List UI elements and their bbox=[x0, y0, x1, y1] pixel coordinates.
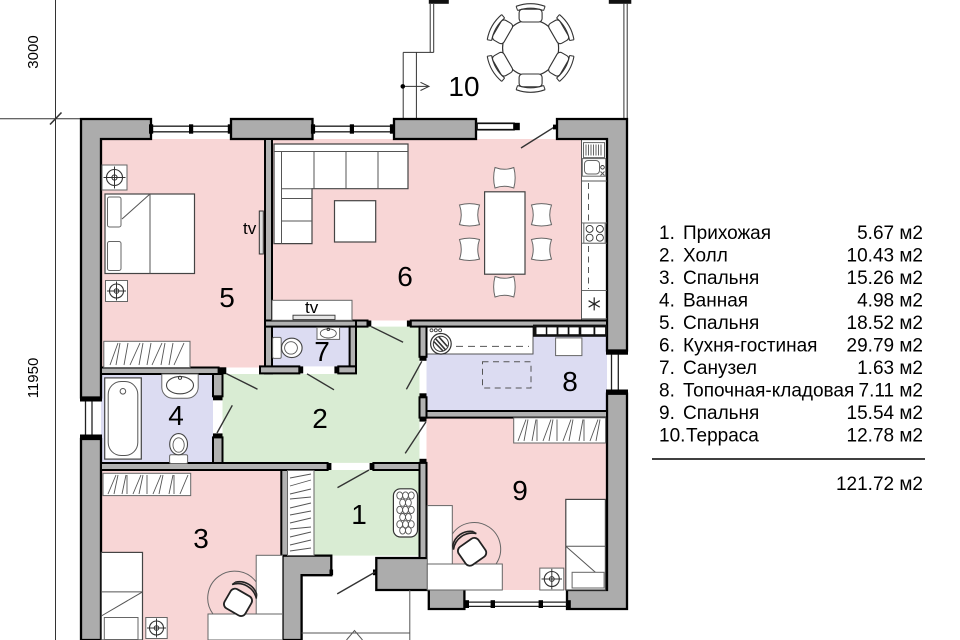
svg-text:5.67 м2: 5.67 м2 bbox=[857, 223, 923, 244]
svg-text:18.52 м2: 18.52 м2 bbox=[847, 313, 923, 334]
svg-text:7: 7 bbox=[314, 336, 330, 367]
svg-text:1: 1 bbox=[351, 499, 367, 530]
svg-text:10.43 м2: 10.43 м2 bbox=[847, 246, 923, 267]
svg-text:12.78 м2: 12.78 м2 bbox=[847, 426, 923, 447]
svg-text:8.: 8. bbox=[659, 381, 675, 402]
svg-text:7.: 7. bbox=[659, 358, 675, 379]
svg-text:3.: 3. bbox=[659, 268, 675, 289]
svg-text:3000: 3000 bbox=[25, 35, 42, 68]
svg-text:6: 6 bbox=[397, 261, 413, 292]
svg-text:Прихожая: Прихожая bbox=[683, 223, 771, 244]
svg-text:9.: 9. bbox=[659, 403, 675, 424]
svg-text:tv: tv bbox=[305, 298, 319, 317]
svg-text:10.: 10. bbox=[659, 426, 685, 447]
svg-text:Кухня-гостиная: Кухня-гостиная bbox=[683, 336, 817, 357]
svg-text:15.26 м2: 15.26 м2 bbox=[847, 268, 923, 289]
svg-text:Ванная: Ванная bbox=[683, 291, 748, 312]
svg-text:10: 10 bbox=[448, 71, 479, 102]
svg-text:Топочная-кладовая: Топочная-кладовая bbox=[683, 381, 854, 402]
svg-text:Холл: Холл bbox=[683, 246, 728, 267]
svg-text:15.54 м2: 15.54 м2 bbox=[847, 403, 923, 424]
svg-text:6.: 6. bbox=[659, 336, 675, 357]
svg-text:Спальня: Спальня bbox=[683, 313, 759, 334]
svg-text:4: 4 bbox=[168, 400, 184, 431]
svg-text:4.: 4. bbox=[659, 291, 675, 312]
svg-text:Спальня: Спальня bbox=[683, 403, 759, 424]
svg-text:4.98 м2: 4.98 м2 bbox=[857, 291, 923, 312]
svg-text:tv: tv bbox=[243, 219, 257, 238]
svg-text:1.63 м2: 1.63 м2 bbox=[857, 358, 923, 379]
svg-text:2: 2 bbox=[312, 403, 328, 434]
svg-text:9: 9 bbox=[512, 475, 528, 506]
svg-text:29.79 м2: 29.79 м2 bbox=[847, 336, 923, 357]
svg-text:2.: 2. bbox=[659, 246, 675, 267]
svg-text:121.72 м2: 121.72 м2 bbox=[836, 474, 923, 495]
svg-text:7.11 м2: 7.11 м2 bbox=[859, 381, 923, 402]
svg-text:1.: 1. bbox=[659, 223, 675, 244]
svg-text:Спальня: Спальня bbox=[683, 268, 759, 289]
svg-text:5: 5 bbox=[219, 282, 235, 313]
svg-text:11950: 11950 bbox=[25, 358, 42, 399]
svg-text:Санузел: Санузел bbox=[683, 358, 757, 379]
svg-text:8: 8 bbox=[562, 366, 578, 397]
svg-text:Терраса: Терраса bbox=[686, 426, 759, 447]
svg-text:3: 3 bbox=[193, 523, 209, 554]
svg-text:5.: 5. bbox=[659, 313, 675, 334]
